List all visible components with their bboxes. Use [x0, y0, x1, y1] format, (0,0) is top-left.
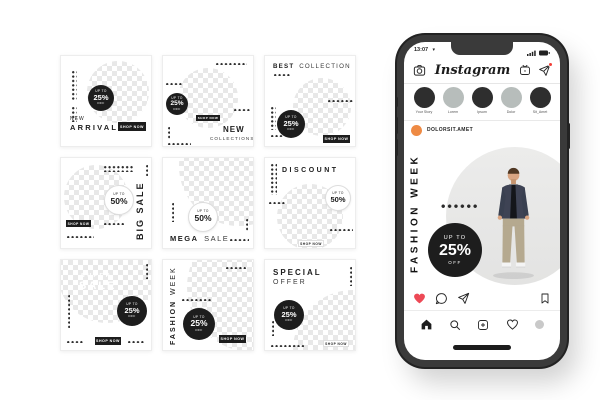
template-title-vertical: FASHION WEEK: [167, 266, 180, 346]
shop-now-button[interactable]: SHOP NOW: [196, 115, 220, 121]
dots-decoration: [440, 203, 478, 208]
status-icons: [527, 50, 550, 56]
notification-badge: [548, 62, 554, 68]
template-title-top: NEW: [70, 116, 85, 122]
template-big-sale: UP TO 50% BIG SALE SHOP NOW: [60, 157, 152, 249]
dots-decoration: [270, 106, 276, 130]
new-post-icon[interactable]: [477, 319, 489, 331]
comment-icon[interactable]: [435, 292, 448, 305]
volume-up-button: [395, 117, 398, 134]
discount-badge: UP TO 25% OFF: [428, 223, 482, 277]
story-item[interactable]: Lorem: [441, 87, 465, 120]
template-new-arrival: UP TO 25% OFF NEW ARRIVAL SHOP NOW: [60, 55, 152, 147]
caret-down-icon: ▾: [433, 47, 436, 53]
discount-badge: UP TO 25% OFF: [117, 296, 147, 326]
dots-decoration: [67, 294, 70, 328]
story-item[interactable]: Dolor: [499, 87, 523, 120]
template-subtitle: COLLECTIONS: [210, 136, 254, 141]
dots-decoration: [167, 126, 170, 139]
design-canvas: UP TO 25% OFF NEW ARRIVAL SHOP NOW UP TO…: [0, 0, 600, 400]
app-header: Instagram: [404, 57, 560, 84]
template-grid: UP TO 25% OFF NEW ARRIVAL SHOP NOW UP TO…: [60, 55, 356, 351]
discount-badge: UP TO 25% OFF: [88, 85, 114, 111]
dots-decoration: [270, 163, 277, 195]
home-icon[interactable]: [420, 318, 433, 331]
story-avatar: [501, 87, 522, 108]
shop-now-button[interactable]: SHOP NOW: [219, 335, 246, 343]
dots-decoration: [165, 82, 183, 85]
dots-decoration: [127, 340, 145, 343]
template-title: BEST COLLECTION: [273, 63, 351, 70]
template-title: DISCOUNT: [282, 167, 339, 174]
overlay-title-top: SUPER: [81, 273, 112, 279]
template-subtitle: OFFER: [273, 279, 307, 286]
post-header: DOLORSIT.AMET: [404, 121, 560, 139]
template-special-offer: SPECIAL OFFER UP TO 25% OFF SHOP NOW: [264, 259, 356, 351]
phone-notch: [451, 42, 513, 55]
bottom-nav: [404, 311, 560, 338]
direct-messages-icon[interactable]: [538, 64, 551, 77]
template-super-sale: SUPER SALE UP TO 25% OFF SHOP NOW: [60, 259, 152, 351]
dots-decoration: [245, 218, 248, 232]
shop-now-button[interactable]: SHOP NOW: [323, 135, 350, 143]
shop-now-button[interactable]: SHOP NOW: [95, 337, 121, 345]
battery-icon: [539, 50, 550, 56]
shop-now-button[interactable]: SHOP NOW: [66, 220, 91, 227]
search-icon[interactable]: [449, 319, 461, 331]
phone-mockup: 13:07 ▾: [397, 35, 567, 367]
dots-decoration: [167, 142, 191, 145]
dots-decoration: [270, 344, 304, 347]
template-title: ARRIVAL: [70, 123, 118, 132]
dots-decoration: [215, 62, 247, 65]
story-item[interactable]: Ipsum: [470, 87, 494, 120]
template-discount: DISCOUNT UP TO 50% SHOP NOW: [264, 157, 356, 249]
shop-now-button[interactable]: SHOP NOW: [118, 122, 146, 131]
mute-switch: [395, 97, 398, 107]
volume-down-button: [395, 139, 398, 156]
home-indicator[interactable]: [453, 345, 511, 350]
story-avatar: [472, 87, 493, 108]
camera-icon[interactable]: [413, 64, 426, 77]
story-item[interactable]: Sit_Amet: [528, 87, 552, 120]
story-avatar: [443, 87, 464, 108]
template-title: SPECIAL: [273, 268, 322, 277]
status-time: 13:07: [414, 47, 428, 53]
post-image: FASHION WEEK UP TO 25% OFF: [404, 139, 560, 287]
template-title: NEW: [223, 125, 245, 134]
model-photo: [490, 165, 537, 280]
dots-decoration: [181, 298, 211, 301]
dots-decoration: [66, 235, 94, 238]
signal-icon: [527, 50, 536, 56]
template-title-vertical: BIG SALE: [133, 176, 147, 246]
template-title: MEGA SALE: [170, 234, 229, 243]
discount-badge: UP TO 50%: [188, 202, 218, 232]
dots-decoration: [327, 99, 353, 102]
template-new-collections: UP TO 25% OFF SHOP NOW NEW COLLECTIONS: [162, 55, 254, 147]
app-logo: Instagram: [426, 63, 519, 78]
template-mega-sale: UP TO 50% MEGA SALE: [162, 157, 254, 249]
template-fashion-week: FASHION WEEK UP TO 25% OFF SHOP NOW: [162, 259, 254, 351]
dots-decoration: [233, 108, 251, 111]
dots-decoration: [171, 202, 174, 222]
like-icon[interactable]: [413, 292, 426, 305]
dots-decoration: [271, 320, 274, 336]
story-avatar: [530, 87, 551, 108]
dots-decoration: [225, 266, 247, 269]
post-username[interactable]: DOLORSIT.AMET: [427, 127, 473, 133]
bookmark-icon[interactable]: [539, 292, 551, 305]
discount-badge: UP TO 50%: [325, 185, 351, 211]
discount-badge: UP TO 25% OFF: [166, 93, 188, 115]
discount-badge: UP TO 50%: [104, 185, 134, 215]
dots-decoration: [349, 266, 352, 286]
dots-decoration: [268, 201, 286, 204]
story-item[interactable]: Your Story: [412, 87, 436, 120]
post-avatar[interactable]: [411, 125, 422, 136]
igtv-icon[interactable]: [519, 64, 531, 76]
shop-now-button[interactable]: SHOP NOW: [298, 240, 324, 247]
shop-now-button[interactable]: SHOP NOW: [323, 340, 349, 347]
template-best-collection: BEST COLLECTION UP TO 25% OFF SHOP NOW: [264, 55, 356, 147]
discount-badge: UP TO 25% OFF: [274, 300, 304, 330]
dots-decoration: [103, 222, 125, 225]
dots-decoration: [145, 164, 148, 176]
stories-row: Your Story Lorem Ipsum Dolor Sit_Amet: [404, 84, 560, 121]
profile-icon[interactable]: [535, 320, 544, 329]
dots-decoration: [103, 165, 133, 172]
discount-badge: UP TO 25% OFF: [183, 308, 215, 340]
dots-decoration: [229, 238, 249, 241]
post-actions: [404, 287, 560, 311]
discount-badge: UP TO 25% OFF: [277, 110, 305, 138]
post-title-vertical: FASHION WEEK: [407, 147, 423, 279]
activity-icon[interactable]: [506, 318, 519, 331]
phone-screen: 13:07 ▾: [404, 42, 560, 360]
dots-decoration: [329, 228, 353, 231]
story-avatar: [414, 87, 435, 108]
share-icon[interactable]: [457, 292, 470, 305]
dots-decoration: [145, 263, 148, 279]
dots-decoration: [273, 73, 291, 76]
dots-decoration: [66, 340, 84, 343]
overlay-title: SALE: [79, 280, 116, 292]
dots-decoration: [71, 70, 77, 100]
power-button: [567, 123, 570, 149]
